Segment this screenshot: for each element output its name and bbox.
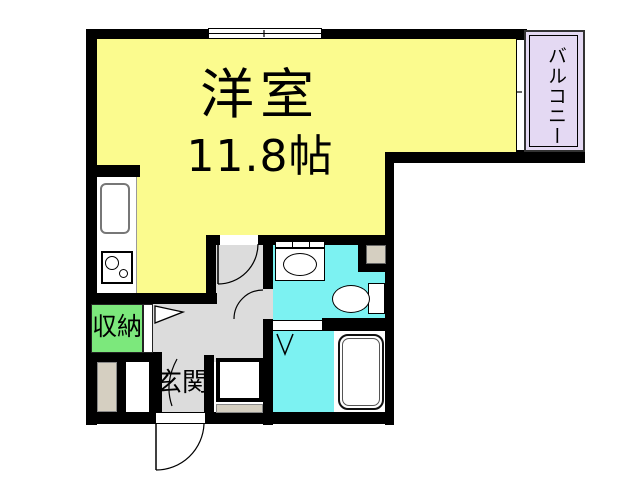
front-door-arc bbox=[156, 424, 204, 470]
floor-plan: 洋室 11.8帖 収納 玄関 バルコニー bbox=[0, 0, 640, 480]
main-room-size: 11.8帖 bbox=[187, 131, 334, 182]
main-room-name: 洋室 bbox=[200, 63, 320, 126]
closet-door-mark bbox=[155, 306, 183, 323]
entrance-label: 玄関 bbox=[156, 369, 208, 397]
balcony-label: バルコニー bbox=[542, 40, 566, 152]
bath-folding-door-mark bbox=[277, 334, 293, 354]
washroom-door-arc bbox=[234, 290, 263, 319]
main-room-label: 洋室 11.8帖 bbox=[120, 66, 400, 183]
closet-label: 収納 bbox=[91, 313, 143, 340]
main-room-door-arc bbox=[218, 244, 258, 284]
